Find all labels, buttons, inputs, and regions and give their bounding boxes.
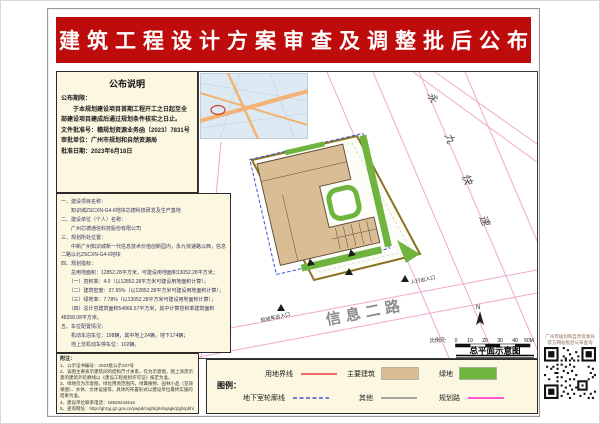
svg-text:0: 0 bbox=[455, 338, 458, 344]
legend-item-planned-road: 规划路 bbox=[439, 393, 506, 403]
poster-sheet: 建筑工程设计方案审查及调整批后公布 bbox=[47, 8, 540, 417]
gray-line-symbol bbox=[379, 394, 419, 402]
red-line-symbol bbox=[299, 370, 339, 378]
footnote-line: 2、该图主要表示建筑间的结构尺寸关系，仅为示意图，图上涂黑示意的建筑外轮廓线以《… bbox=[60, 369, 195, 381]
detail-line: 中新广州知识城新一代信息技术价值创新园内，永九快速路以西，信息 bbox=[61, 243, 226, 252]
svg-text:50M: 50M bbox=[524, 338, 534, 344]
notice-title: 公布说明 bbox=[61, 77, 193, 90]
footnotes-box: 附注： 1、公示证书编号：2023批公示337号 2、该图主要表示建筑间的结构尺… bbox=[56, 353, 199, 414]
legend-item-other: 其他 bbox=[359, 393, 419, 403]
footnote-line: 3、绿地仅为示意图，绿化用地范围内，绿篱植物、园林小品（见效果图）、水体、文体设… bbox=[60, 381, 195, 399]
detail-line: 知识城ZSCXN-G4-6地块芯德科技研发及生产基地 bbox=[61, 207, 226, 216]
notice-line: 批准日期：2023年6月18日 bbox=[61, 147, 193, 158]
svg-text:40: 40 bbox=[512, 338, 518, 344]
detail-line: （一）容积率：4.0（以12852.28平方米可建设用地面积计算）； bbox=[61, 278, 226, 287]
notice-line: 部建设项目建成后通过规划条件核实之日止。 bbox=[61, 115, 193, 126]
detail-line: （四）总计容建筑面积54866.57平方米，其中计算容积率建筑面积 bbox=[61, 305, 226, 314]
detail-line: 一、建设项目名称： bbox=[61, 198, 226, 207]
vehicle-entrance-label: 机动车出入口 bbox=[260, 311, 291, 324]
detail-line: 总用地面积：12852.28平方米，可建设用地面积13052.28平方米； bbox=[61, 269, 226, 278]
footnotes-title: 附注： bbox=[60, 356, 195, 363]
svg-text:N: N bbox=[476, 305, 480, 311]
courtyard-green-feature bbox=[327, 186, 361, 221]
notice-line: 文件批准号：穗规划资源业务函〔2023〕7831号 bbox=[61, 126, 193, 137]
detail-line: 二路以北ZSCXN-G4-6地块 bbox=[61, 251, 226, 260]
legend-item-boundary: 用地界线 bbox=[265, 369, 339, 379]
qr-block: 广州市规划和自然资源局 官方网站批后公布查询 bbox=[542, 334, 598, 399]
detail-line: （三）绿地率：7.78%（以13052.28平方米可建设用地面积计算）； bbox=[61, 296, 226, 305]
svg-text:总平面示意图: 总平面示意图 bbox=[469, 346, 520, 356]
page-title: 建筑工程设计方案审查及调整批后公布 bbox=[52, 25, 535, 55]
detail-line: 四、规划指标： bbox=[61, 260, 226, 269]
title-banner: 建筑工程设计方案审查及调整批后公布 bbox=[56, 17, 531, 63]
svg-text:30: 30 bbox=[497, 338, 503, 344]
notice-line: 审批单位：广州市规划和自然资源局 bbox=[61, 136, 193, 147]
scale-label: 比例尺: bbox=[430, 337, 446, 344]
notice-line: 公布期限： bbox=[61, 94, 193, 105]
detail-line: 广州芯德通信科技股份有限公司 bbox=[61, 225, 226, 234]
site-plan-panel: 机动车出入口 人行出入口 永九快速 信息二路 N bbox=[198, 71, 538, 359]
legend-item-building: 主要建筑 bbox=[347, 367, 419, 380]
detail-line: 三、规划所处位置： bbox=[61, 234, 226, 243]
svg-text:10: 10 bbox=[467, 338, 473, 344]
magenta-line-symbol bbox=[466, 394, 506, 402]
detail-line: （二）建筑密度：37.65%（以12852.28平方米可建设用地面积计算）； bbox=[61, 287, 226, 296]
legend-box: 图例： 用地界线 主要建筑 绿地 地下室轮廓线 其他 规划路 bbox=[206, 359, 538, 414]
inset-location-map bbox=[200, 73, 308, 139]
footnote-line: 5、查询网址：http://ghzyj.gz.gov.cn/ywpd/csgh/… bbox=[60, 406, 195, 412]
legend-title: 图例： bbox=[217, 380, 241, 391]
detail-line: 机动车泊车位：198辆，其中地上24辆，地下174辆； bbox=[61, 332, 226, 341]
blue-dashed-symbol bbox=[291, 394, 331, 402]
legend-item-green: 绿地 bbox=[439, 367, 497, 380]
notice-line: 于本规划建设项目首期工程开工之日起至全 bbox=[61, 105, 193, 116]
site-plan: 机动车出入口 人行出入口 永九快速 信息二路 N bbox=[199, 72, 537, 358]
qr-code bbox=[544, 347, 596, 399]
qr-caption-line1: 广州市规划和自然资源局 bbox=[542, 334, 598, 340]
green-swatch bbox=[459, 367, 497, 380]
detail-line: 48358.08平方米。 bbox=[61, 314, 226, 323]
detail-line: 五、车位配置情况： bbox=[61, 323, 226, 332]
qr-caption-line2: 官方网站批后公布查询 bbox=[542, 340, 598, 346]
legend-item-underground: 地下室轮廓线 bbox=[243, 393, 331, 403]
detail-line: 地上非机动车停车位：102辆。 bbox=[61, 341, 226, 350]
tan-swatch bbox=[381, 367, 419, 380]
detail-line: 二、建设单位（个人）名称： bbox=[61, 216, 226, 225]
project-details-box: 一、建设项目名称： 知识城ZSCXN-G4-6地块芯德科技研发及生产基地 二、建… bbox=[56, 193, 231, 353]
notice-box: 公布说明 公布期限： 于本规划建设项目首期工程开工之日起至全 部建设项目建成后通… bbox=[56, 71, 198, 193]
info-road-name: 信息二路 bbox=[324, 296, 406, 329]
svg-text:20: 20 bbox=[482, 338, 488, 344]
expressway-name: 永九快速 bbox=[424, 90, 505, 259]
